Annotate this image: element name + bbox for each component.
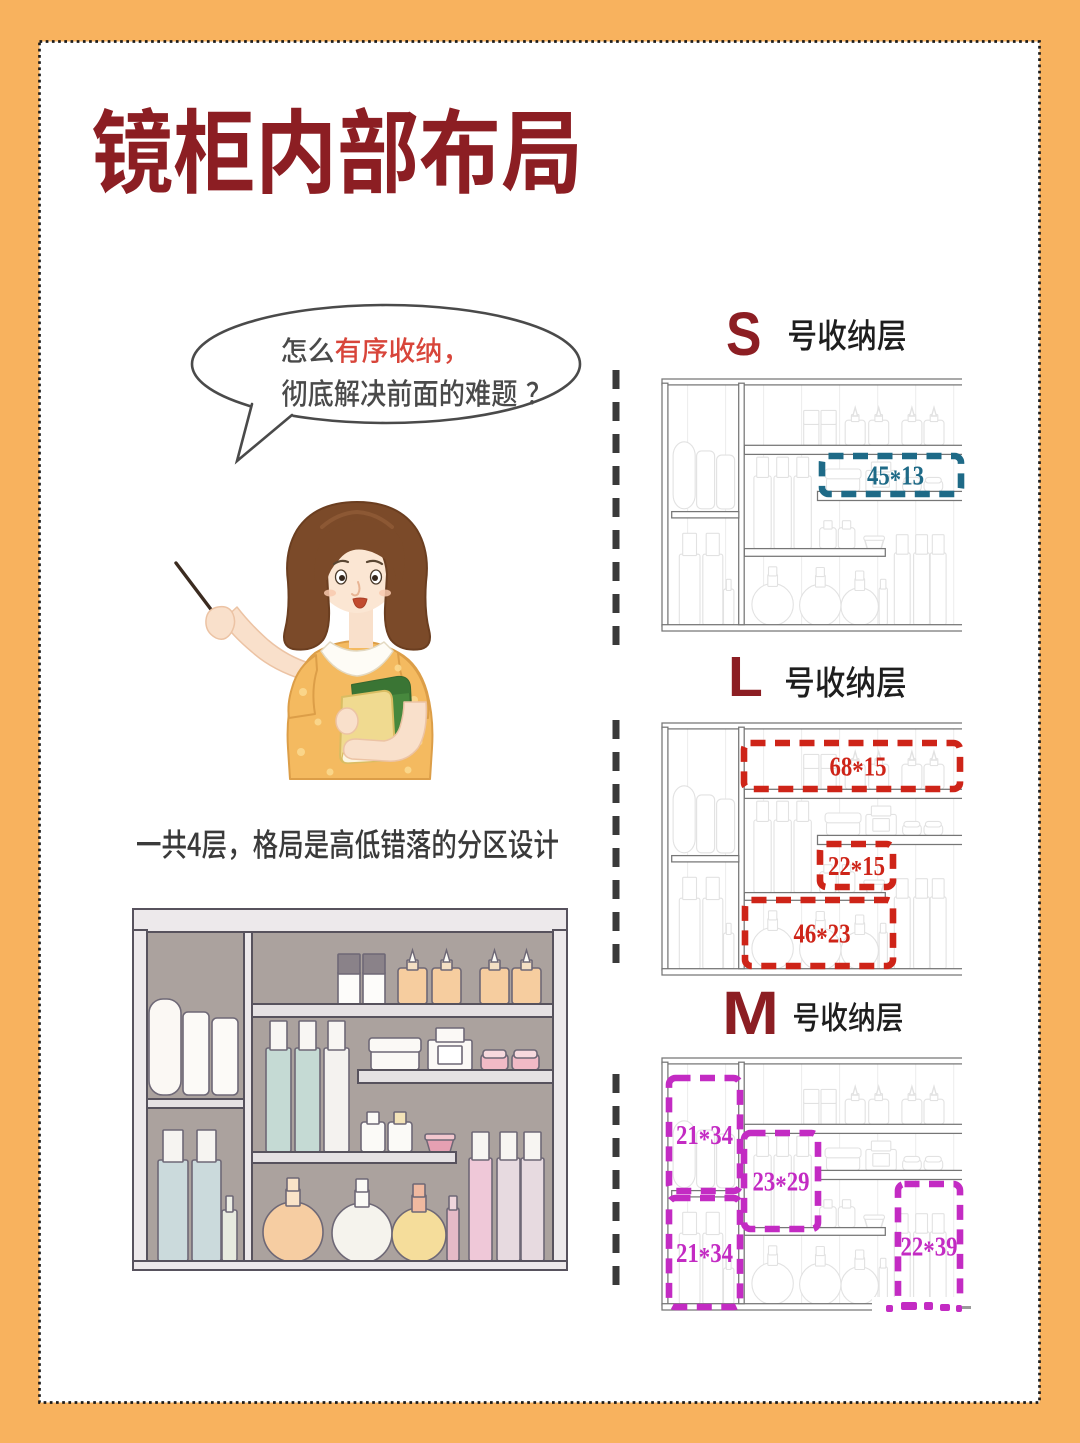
svg-text:46*23: 46*23 [794,919,851,953]
svg-text:S: S [726,300,762,368]
svg-text:L: L [728,645,763,709]
svg-text:45*13: 45*13 [867,461,924,495]
svg-text:22*39: 22*39 [901,1232,958,1266]
svg-text:21*34: 21*34 [676,1120,733,1154]
svg-text:68*15: 68*15 [830,752,887,786]
svg-text:M: M [722,979,779,1047]
svg-text:22*15: 22*15 [828,851,885,885]
svg-text:21*34: 21*34 [676,1238,733,1272]
svg-text:23*29: 23*29 [753,1167,810,1201]
